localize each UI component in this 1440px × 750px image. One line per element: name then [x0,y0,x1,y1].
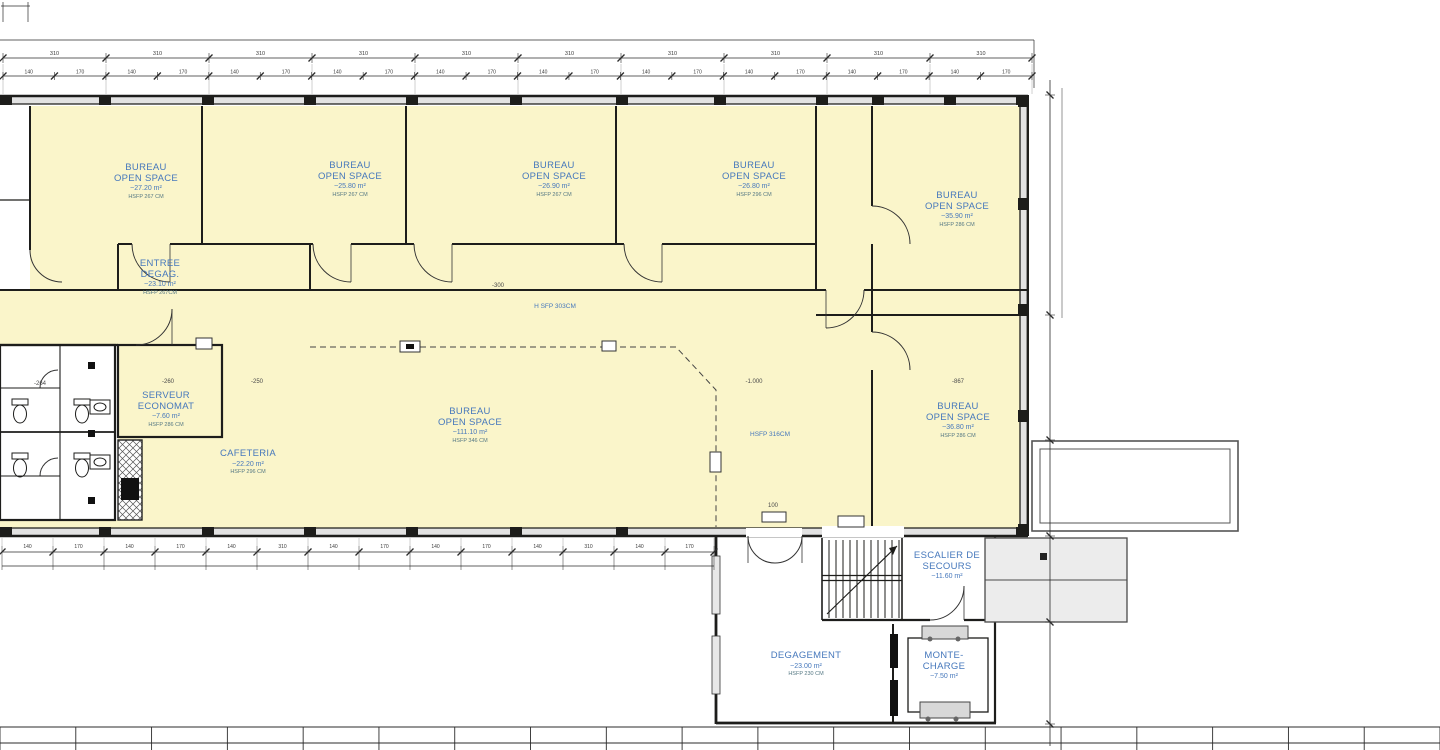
dim-label: 170 [685,544,694,550]
dim-label: 140 [642,70,651,76]
dim-label: 310 [874,51,883,57]
dim-label: 170 [76,70,85,76]
dim-label: 310 [565,51,574,57]
monte-charge-shaft [890,624,988,723]
dim-label: 170 [693,70,702,76]
dim-label: 140 [127,70,136,76]
dim-label: 310 [668,51,677,57]
dim-label: 140 [431,544,440,550]
exterior-platform [1032,441,1238,531]
dim-label: 140 [227,544,236,550]
gray-annex-block [985,538,1127,622]
dim-label: 140 [539,70,548,76]
dim-label: 310 [278,544,287,550]
dim-label: 170 [380,544,389,550]
floor-plan: 3103103103103103103103103103101401701401… [0,0,1440,750]
dim-label: 170 [1002,70,1011,76]
dim-label: 310 [771,51,780,57]
dim-label: 310 [153,51,162,57]
dim-label: 170 [176,544,185,550]
dim-label: 170 [796,70,805,76]
dim-label: 310 [462,51,471,57]
dim-label: 310 [359,51,368,57]
dim-label: 170 [74,544,83,550]
dim-label: 170 [591,70,600,76]
technical-shaft [118,440,142,520]
dim-label: 140 [333,70,342,76]
dim-label: 170 [488,70,497,76]
dim-label: 140 [23,544,32,550]
dim-label: 310 [50,51,59,57]
room-fills [0,106,1028,528]
dim-label: 140 [125,544,134,550]
plan-drawing: 3103103103103103103103103103101401701401… [0,0,1440,750]
dim-label: 170 [179,70,188,76]
dim-label: 170 [282,70,291,76]
dim-label: 140 [951,70,960,76]
annex [712,512,996,724]
dim-label: 140 [329,544,338,550]
dim-label: 310 [256,51,265,57]
dim-label: 170 [482,544,491,550]
dim-label: 170 [899,70,908,76]
dim-label: 140 [745,70,754,76]
dim-label: 140 [533,544,542,550]
dim-label: 140 [635,544,644,550]
dim-label: 170 [385,70,394,76]
dim-label: 310 [976,51,985,57]
dim-label: 310 [584,544,593,550]
dim-label: 140 [848,70,857,76]
dim-label: 140 [436,70,445,76]
staircase [822,538,902,620]
dim-label: 140 [25,70,34,76]
dim-label: 140 [230,70,239,76]
